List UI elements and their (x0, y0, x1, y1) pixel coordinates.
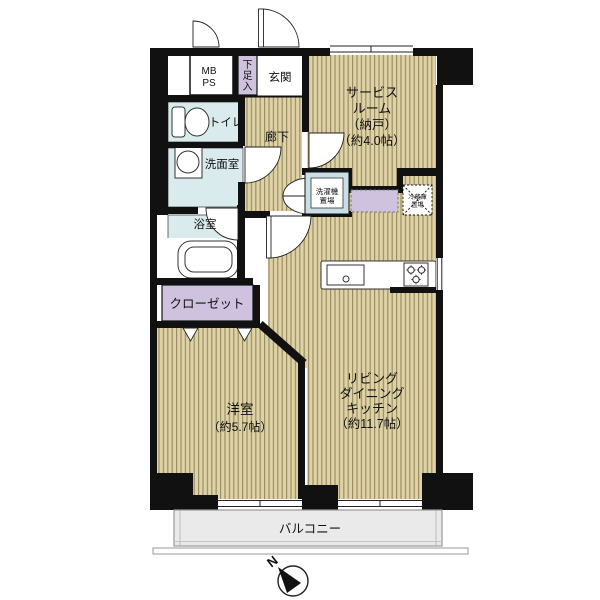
entrance-door-arc (261, 9, 299, 47)
ldk-door-leaf (267, 216, 272, 258)
shoe-cabinet-label: 下 (243, 60, 253, 71)
floor-plan: N MB PS 下 足 入 玄関 サービス ルーム （納戸） （約4.0帖） ト… (0, 0, 600, 600)
ldk-label: ダイニング (339, 386, 404, 401)
ldk-label: （約11.7帖） (335, 416, 408, 431)
wall (157, 95, 168, 215)
washroom-label: 洗面室 (205, 157, 240, 171)
corridor-label: 廊下 (265, 129, 289, 144)
storage-strip-box (351, 190, 398, 212)
wall (150, 278, 253, 285)
service-room-label: ルーム (353, 101, 392, 116)
wall (253, 285, 260, 325)
wall (298, 360, 305, 505)
compass-north-icon: N (264, 553, 308, 596)
ldk-label: キッチン (346, 401, 398, 416)
wall (302, 485, 338, 510)
closet-label: クローゼット (169, 297, 244, 311)
wall (302, 48, 309, 132)
wall (157, 207, 198, 214)
wall (150, 495, 218, 510)
wall (413, 48, 437, 56)
wall (157, 142, 243, 148)
ground-line (153, 548, 468, 554)
meter-box-label: MB (202, 66, 217, 77)
floor-plan-canvas: N MB PS 下 足 入 玄関 サービス ルーム （納戸） （約4.0帖） ト… (0, 0, 600, 600)
shoe-cabinet-label: 足 (243, 70, 253, 82)
kitchen-counter (321, 261, 436, 289)
washer-space-label: 置場 (320, 195, 335, 205)
fridge-space-label: 冷蔵庫 (408, 193, 427, 201)
wall (422, 473, 473, 510)
wall (437, 48, 473, 85)
service-room-window (330, 45, 413, 53)
entrance-label: 玄関 (269, 70, 292, 84)
kitchen-side-window (436, 258, 443, 290)
toilet-icon (172, 107, 209, 137)
balcony-label: バルコニー (279, 522, 341, 536)
meter-box-label: PS (202, 78, 216, 89)
wall (397, 168, 436, 176)
service-room-label: （約4.0帖） (338, 133, 405, 148)
compass-label: N (264, 553, 281, 571)
ldk-label: リビング (346, 371, 398, 386)
ldk-window (338, 499, 422, 508)
bath-label: 浴室 (194, 217, 217, 231)
western-room-window (218, 499, 302, 508)
bathtub-icon (162, 238, 240, 281)
wall (150, 95, 245, 102)
washer-space-label: 洗濯機 (316, 186, 339, 196)
service-room-label: サービス (346, 85, 398, 100)
western-room-label: （約5.7帖） (208, 419, 273, 434)
washbasin-icon (175, 146, 202, 178)
meter-box-door-arc (193, 21, 219, 47)
ldk-floor (307, 170, 436, 505)
western-room-label: 洋室 (227, 401, 254, 417)
wall (390, 287, 436, 293)
service-room-label: （納戸） (347, 118, 397, 132)
shoe-cabinet-label: 入 (243, 82, 253, 93)
toilet-label: トイレ (209, 117, 244, 129)
wall (233, 55, 238, 95)
entrance-door-leaf (259, 9, 264, 47)
fridge-space-label: 置場 (411, 201, 423, 209)
wall (157, 321, 260, 328)
